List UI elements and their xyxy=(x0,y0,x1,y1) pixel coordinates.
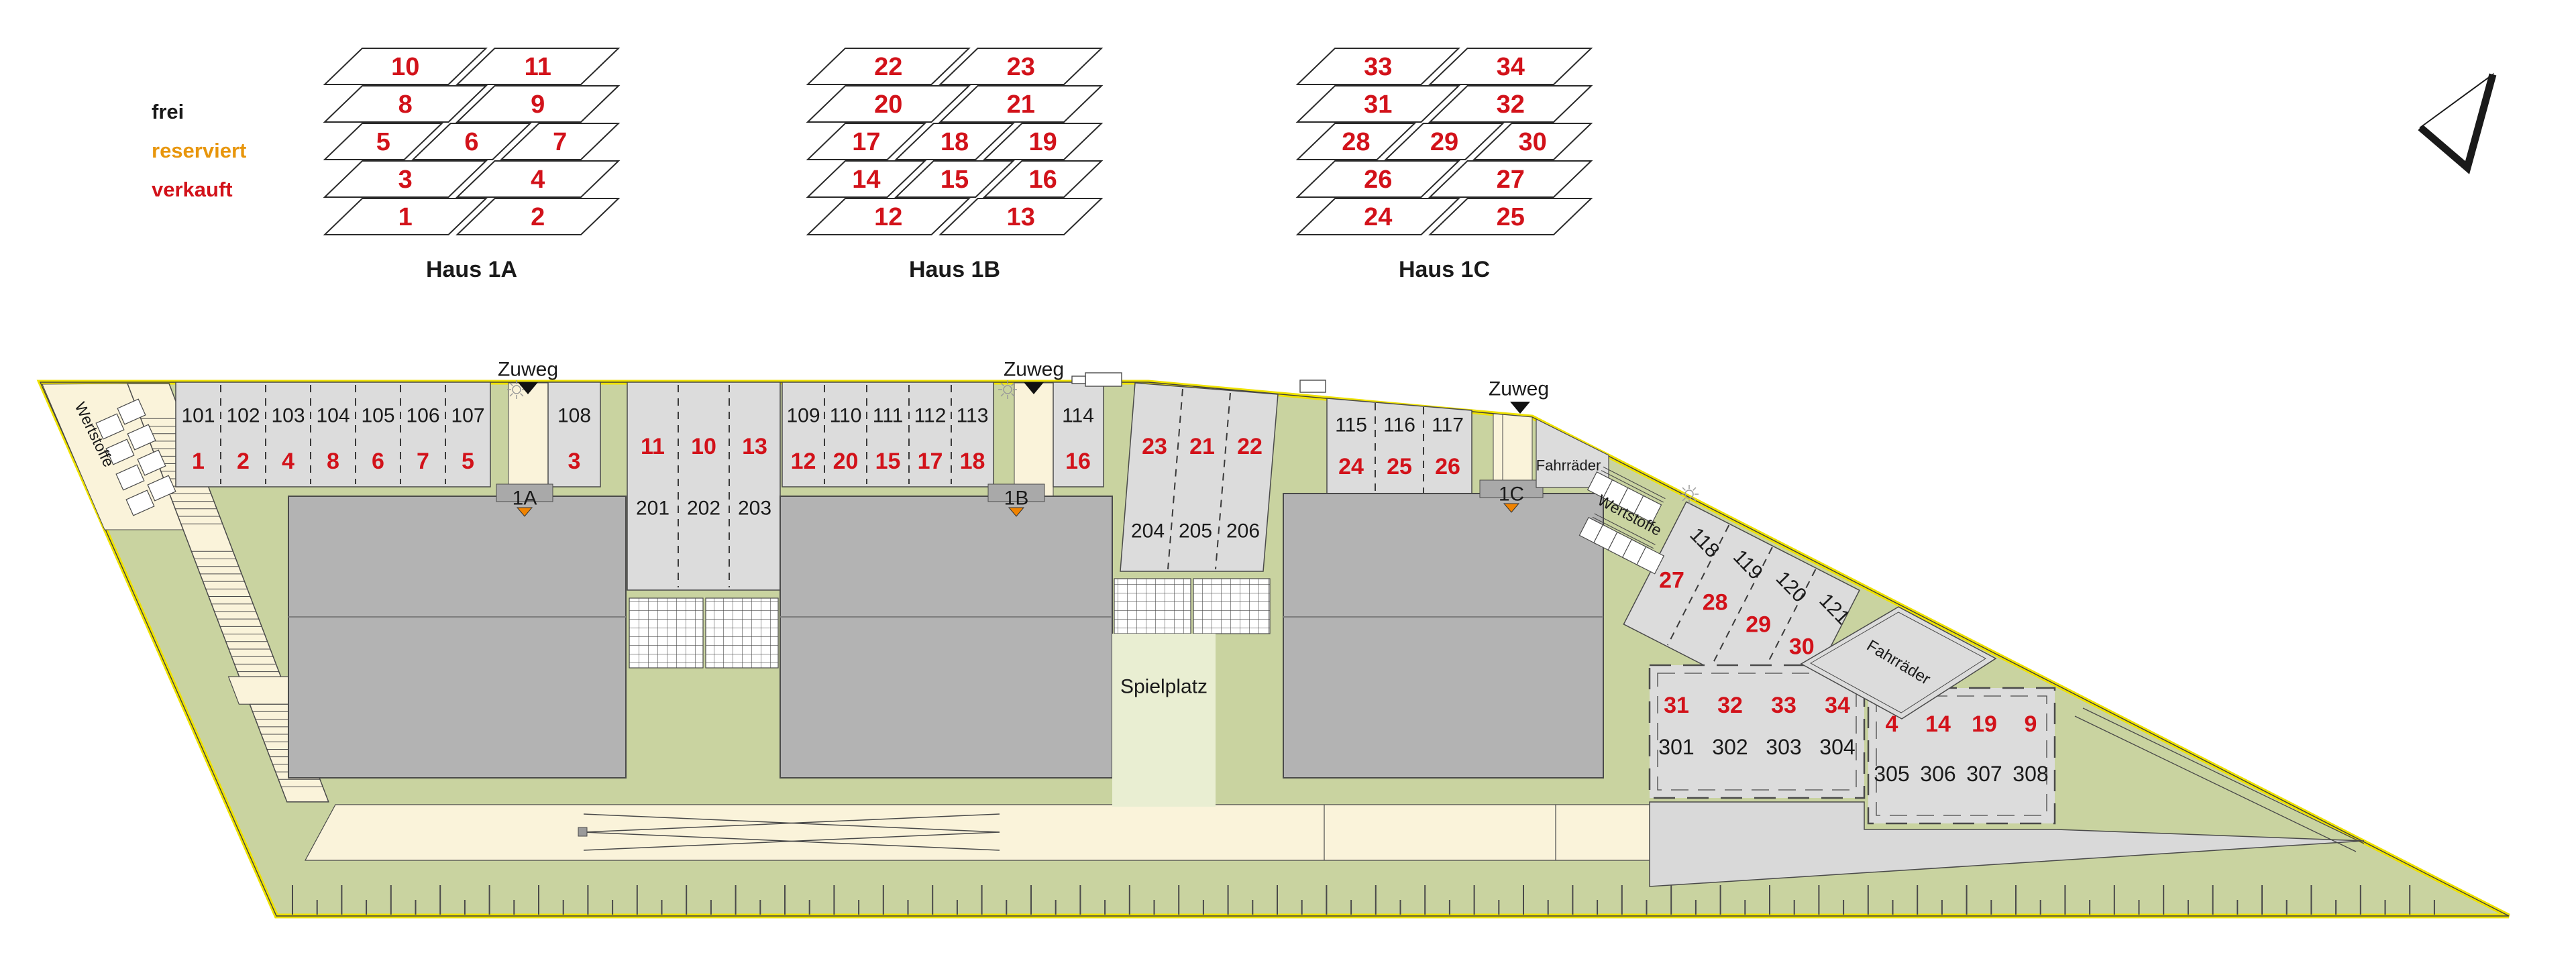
stall-120-unit-label: 29 xyxy=(1746,612,1771,637)
garage-202-unit-label: 10 xyxy=(691,434,716,459)
stall-104-id-label: 104 xyxy=(316,405,350,427)
south-walkway[interactable] xyxy=(305,805,1652,860)
pergola-roof xyxy=(629,598,703,668)
garage-203-id-label: 203 xyxy=(738,498,771,520)
stall-111-unit-label: 15 xyxy=(875,449,901,474)
stall-116-unit-label: 25 xyxy=(1387,454,1412,479)
lamp-icon xyxy=(1680,485,1699,504)
stall-121-unit-label: 30 xyxy=(1789,634,1815,659)
zuweg-label: Zuweg xyxy=(1489,378,1549,400)
stall-114-unit-label: 16 xyxy=(1065,449,1091,474)
garage-203-unit-label: 13 xyxy=(742,434,767,459)
stall-109-id-label: 109 xyxy=(786,405,820,427)
zuweg-path-1c[interactable] xyxy=(1493,414,1532,487)
stall-115-id-label: 115 xyxy=(1335,414,1367,437)
stall-113-id-label: 113 xyxy=(957,405,989,427)
building-1a-label: 1A xyxy=(513,487,537,510)
garage-205-unit-label: 21 xyxy=(1189,434,1215,459)
building-1b-label: 1B xyxy=(1004,487,1029,510)
stall-107-id-label: 107 xyxy=(451,405,484,427)
garage-block-301-304[interactable] xyxy=(1650,665,1864,798)
stall-105-unit-label: 6 xyxy=(372,449,384,474)
stall-116-id-label: 116 xyxy=(1383,414,1415,437)
garage-304-unit-label: 34 xyxy=(1825,693,1850,718)
garage-201-id-label: 201 xyxy=(636,498,669,520)
zuweg-label: Zuweg xyxy=(1004,359,1064,381)
stall-101-id-label: 101 xyxy=(181,405,215,427)
garage-303-unit-label: 33 xyxy=(1771,693,1796,718)
stall-106-id-label: 106 xyxy=(406,405,439,427)
stall-107-unit-label: 5 xyxy=(462,449,474,474)
garage-305-id-label: 305 xyxy=(1874,762,1909,786)
pergola-roof xyxy=(1193,579,1270,634)
stall-117-unit-label: 26 xyxy=(1435,454,1460,479)
garage-204-id-label: 204 xyxy=(1131,520,1165,542)
stall-112-unit-label: 17 xyxy=(918,449,943,474)
garage-307-id-label: 307 xyxy=(1966,762,2002,786)
stall-108-unit-label: 3 xyxy=(568,449,581,474)
playground-area xyxy=(1112,634,1216,807)
building-1c-label: 1C xyxy=(1499,483,1524,506)
stall-114-id-label: 114 xyxy=(1062,405,1094,427)
garage-204-unit-label: 23 xyxy=(1142,434,1167,459)
garage-302-id-label: 302 xyxy=(1712,735,1748,759)
stall-110-id-label: 110 xyxy=(830,405,862,427)
zuweg-path-1b[interactable] xyxy=(1014,383,1053,496)
bench-icon xyxy=(1300,380,1326,392)
garage-202-id-label: 202 xyxy=(687,498,720,520)
garage-303-id-label: 303 xyxy=(1766,735,1801,759)
pergola-roof xyxy=(706,598,778,668)
zuweg-label: Zuweg xyxy=(498,359,558,381)
bench-icon xyxy=(1072,376,1085,384)
stall-113-unit-label: 18 xyxy=(960,449,985,474)
garage-301-id-label: 301 xyxy=(1658,735,1694,759)
site-plan: Wertstoffe101110221034104810561067107510… xyxy=(0,0,2576,979)
garage-206-id-label: 206 xyxy=(1226,520,1260,542)
bench-icon xyxy=(1085,373,1122,386)
garage-group-201-203[interactable] xyxy=(627,382,780,590)
bike-shelter-north-label: Fahrräder xyxy=(1536,457,1601,474)
stall-103-unit-label: 4 xyxy=(282,449,294,474)
building-1b xyxy=(780,496,1112,778)
stall-102-unit-label: 2 xyxy=(237,449,250,474)
garage-206-unit-label: 22 xyxy=(1237,434,1263,459)
stall-118-unit-label: 27 xyxy=(1659,567,1684,593)
stall-112-id-label: 112 xyxy=(914,405,947,427)
stall-119-unit-label: 28 xyxy=(1703,589,1728,615)
stall-110-unit-label: 20 xyxy=(833,449,859,474)
garage-306-unit-label: 14 xyxy=(1925,711,1951,737)
stall-103-id-label: 103 xyxy=(271,405,305,427)
pergola-roof xyxy=(1114,579,1191,634)
building-1a xyxy=(288,496,626,778)
garage-301-unit-label: 31 xyxy=(1664,693,1689,718)
zuweg-path-1a[interactable] xyxy=(508,383,548,496)
garage-group-204-206[interactable] xyxy=(1120,383,1278,571)
entrance-arrow xyxy=(1510,402,1530,414)
stall-104-unit-label: 8 xyxy=(327,449,339,474)
garage-304-id-label: 304 xyxy=(1819,735,1855,759)
garage-302-unit-label: 32 xyxy=(1717,693,1743,718)
ramp-base xyxy=(578,827,587,836)
stall-101-unit-label: 1 xyxy=(192,449,205,474)
stall-105-id-label: 105 xyxy=(361,405,394,427)
stall-115-unit-label: 24 xyxy=(1338,454,1364,479)
stall-102-id-label: 102 xyxy=(226,405,260,427)
stall-117-id-label: 117 xyxy=(1432,414,1464,437)
stall-111-id-label: 111 xyxy=(873,405,904,427)
garage-205-id-label: 205 xyxy=(1179,520,1212,542)
building-1c xyxy=(1283,494,1603,778)
garage-201-unit-label: 11 xyxy=(641,434,665,459)
playground-label: Spielplatz xyxy=(1120,676,1207,698)
garage-308-unit-label: 9 xyxy=(2025,711,2037,737)
garage-307-unit-label: 19 xyxy=(1972,711,1997,737)
stall-108-id-label: 108 xyxy=(557,405,591,427)
garage-308-id-label: 308 xyxy=(2012,762,2048,786)
stall-106-unit-label: 7 xyxy=(417,449,429,474)
garage-306-id-label: 306 xyxy=(1920,762,1955,786)
stall-109-unit-label: 12 xyxy=(791,449,816,474)
